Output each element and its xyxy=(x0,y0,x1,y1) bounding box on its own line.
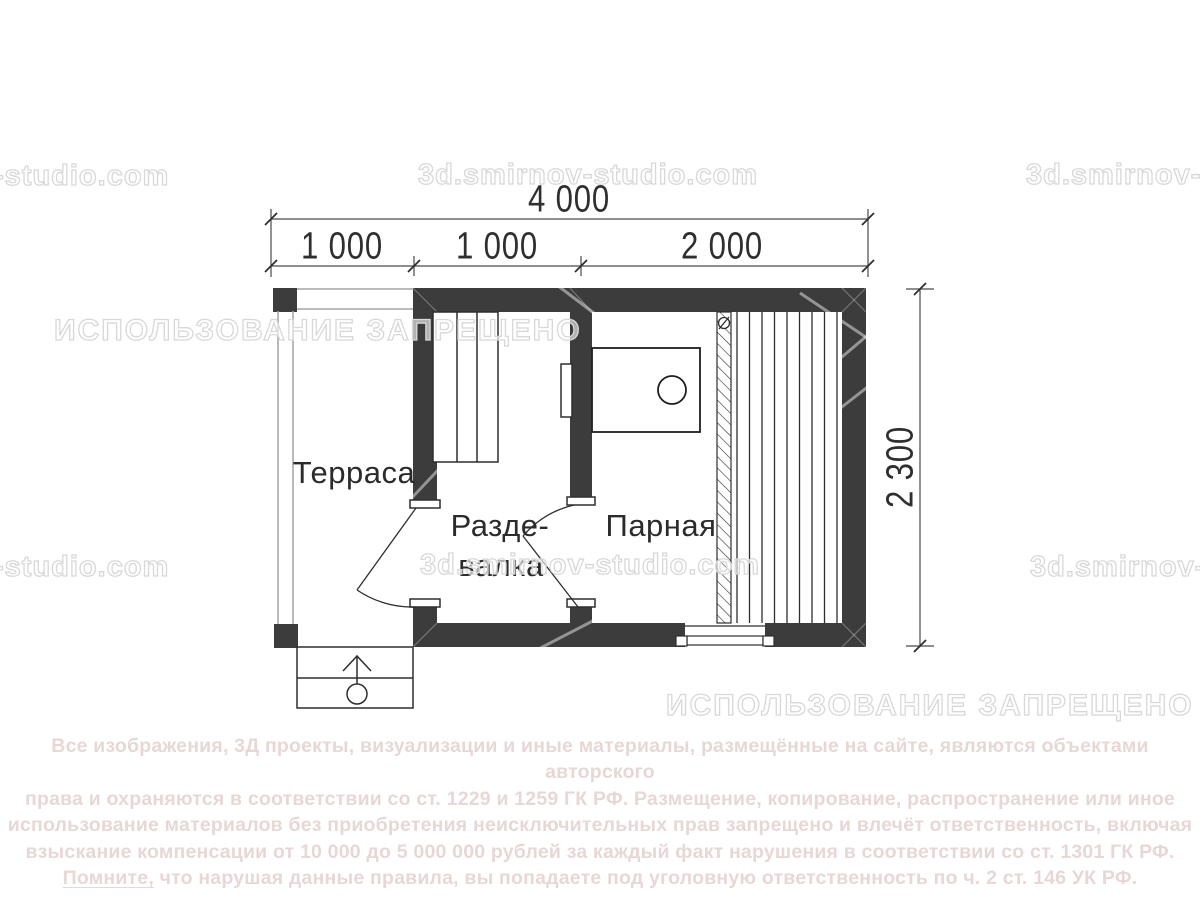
copyright-line-5-rest: что нарушая данные правила, вы попадаете… xyxy=(154,867,1137,889)
room-label-steam: Парная xyxy=(606,508,717,544)
watermark-forbidden-upper: ИСПОЛЬЗОВАНИЕ ЗАПРЕЩЕНО xyxy=(54,314,582,348)
watermark-brand-mid-right: 3d.smirnov-studio.com xyxy=(1030,551,1200,584)
copyright-notice: Все изображения, 3Д проекты, визуализаци… xyxy=(0,733,1200,891)
window xyxy=(676,626,774,646)
watermark-forbidden-lower: ИСПОЛЬЗОВАНИЕ ЗАПРЕЩЕНО xyxy=(666,689,1194,723)
room-label-terrace: Терраса xyxy=(293,455,415,491)
firebox-opening xyxy=(561,364,572,417)
watermark-brand-mid-center: 3d.smirnov-studio.com xyxy=(420,549,760,582)
door-terrace xyxy=(357,508,416,607)
copyright-line-1: Все изображения, 3Д проекты, визуализаци… xyxy=(0,733,1200,786)
copyright-line-4: взыскание компенсации от 10 000 до 5 000… xyxy=(0,839,1200,865)
room-label-dressing-line1: Разде- xyxy=(451,508,550,544)
watermark-brand-mid-left: -studio.com xyxy=(0,551,169,584)
stove xyxy=(592,348,700,432)
watermark-brand-top-left: -studio.com xyxy=(0,160,169,193)
copyright-line-5: Помните, что нарушая данные правила, вы … xyxy=(0,865,1200,891)
watermark-brand-top-center: 3d.smirnov-studio.com xyxy=(418,159,758,192)
copyright-line-3: использование материалов без приобретени… xyxy=(0,812,1200,838)
copyright-line-2: права и охраняются в соответствии со ст.… xyxy=(0,786,1200,812)
copyright-line-5-emphasis: Помните, xyxy=(63,867,154,889)
entrance-steps xyxy=(297,647,413,708)
floor-plan-page: 4 000 1 000 1 000 2 000 2 300 Терраса Ра… xyxy=(0,0,1200,900)
watermark-brand-top-right: 3d.smirnov-studio.com xyxy=(1026,159,1200,192)
